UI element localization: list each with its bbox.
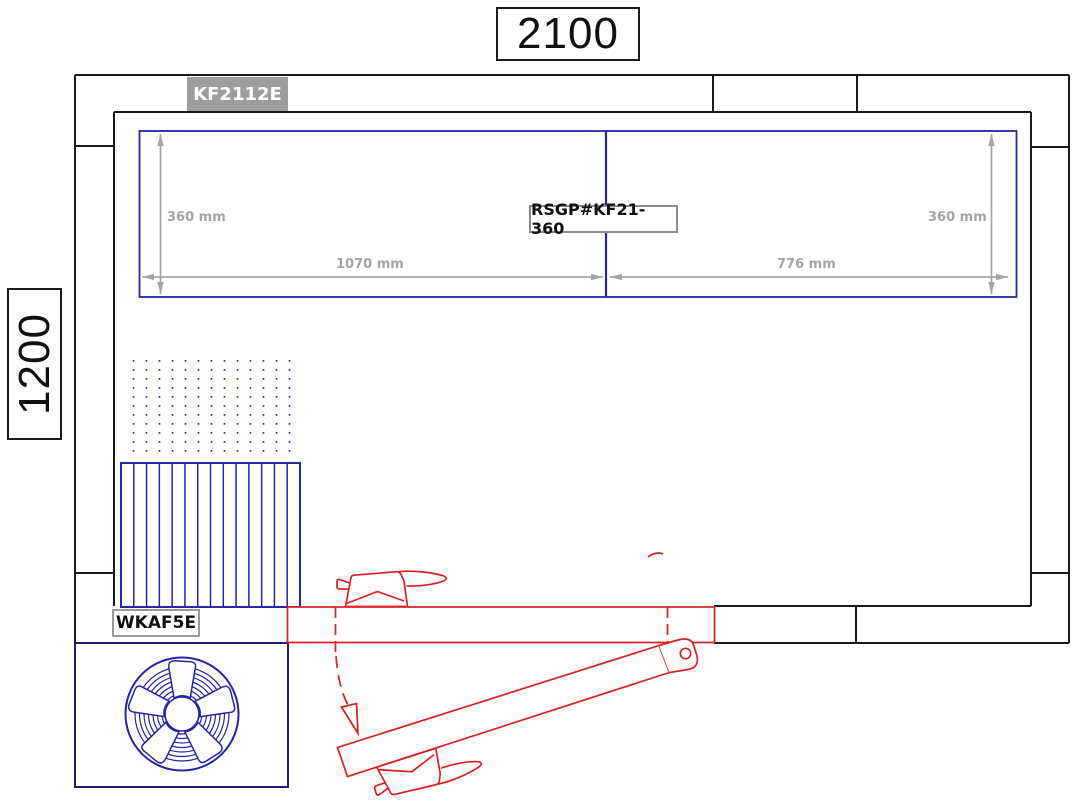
right-wall-joints (1031, 147, 1069, 573)
door-detail-tick (648, 553, 663, 557)
dim-text-span-left: 1070 mm (336, 257, 404, 272)
left-wall-joints (75, 146, 114, 573)
door-frame-closed (288, 607, 715, 643)
door-handle-closed (337, 571, 446, 606)
overall-width-value: 2100 (517, 9, 619, 59)
dim-text-right-height: 360 mm (928, 210, 987, 225)
evaporator-airflow-dots (134, 360, 290, 457)
evaporator-fins (134, 464, 287, 606)
door-assembly (288, 553, 715, 800)
ceiling-panel-code-label: RSGP#KF21-360 (529, 205, 678, 233)
door-swing-arc (336, 656, 352, 712)
evaporator-code-label: WKAF5E (112, 609, 200, 637)
dim-text-span-right: 776 mm (777, 257, 836, 272)
fan-icon (126, 658, 239, 771)
door-leaf-open (338, 646, 670, 777)
overall-depth-value: 1200 (10, 313, 60, 415)
door-hinge-pin (680, 648, 690, 658)
door-swing-arrowhead (342, 704, 359, 734)
fan-hub (165, 697, 199, 731)
wall-panel-outline (75, 75, 1069, 643)
top-wall-joints (713, 75, 857, 112)
cad-drawing-canvas: 2100 1200 KF2112E RSGP#KF21-360 WKAF5E 3… (0, 0, 1083, 800)
dim-text-left-height: 360 mm (167, 210, 226, 225)
overall-width-label: 2100 (496, 7, 640, 61)
floorplan-drawing (0, 0, 1083, 800)
overall-depth-label: 1200 (7, 288, 62, 440)
wall-panel-code-label: KF2112E (187, 77, 288, 111)
